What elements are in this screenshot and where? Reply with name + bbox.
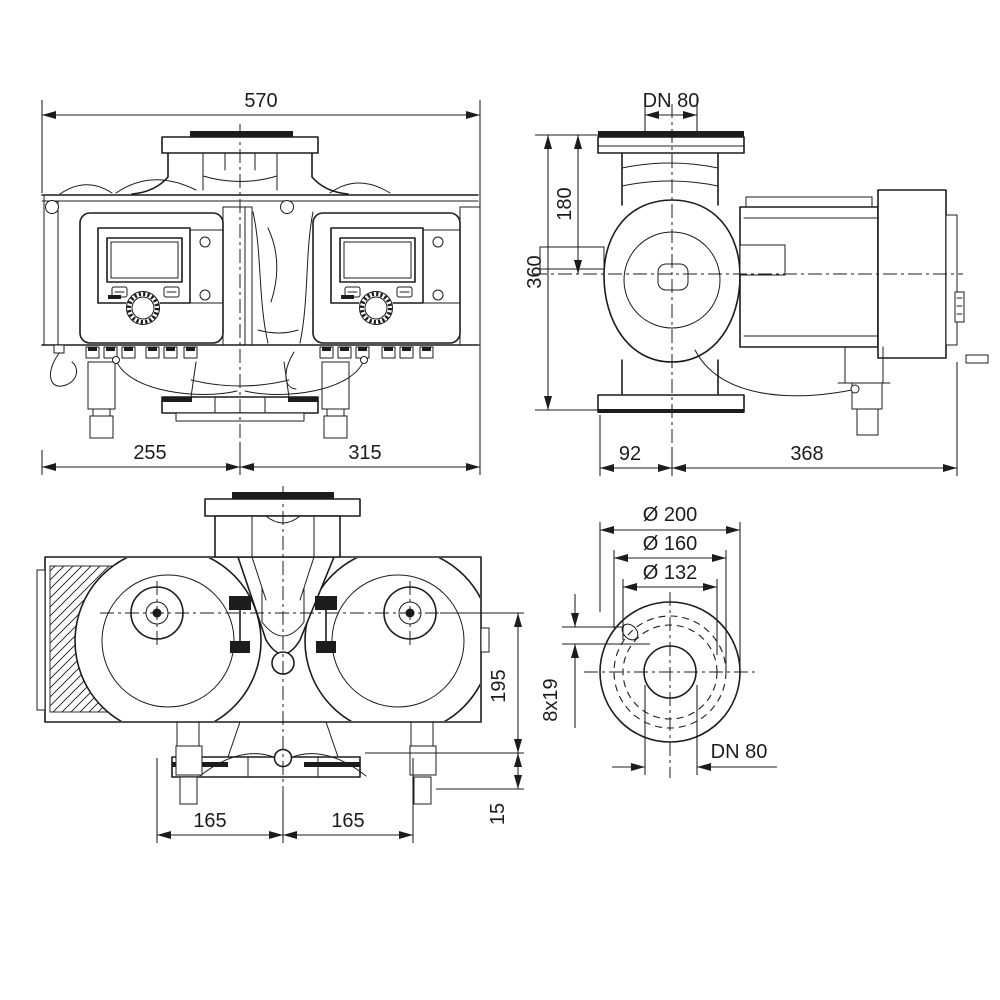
side-module bbox=[878, 190, 988, 363]
front-bolt-hole-center bbox=[281, 201, 294, 214]
control-module-left bbox=[80, 207, 252, 345]
knob-right bbox=[359, 291, 394, 326]
cable-glands bbox=[42, 345, 478, 358]
side-foot bbox=[695, 347, 890, 435]
dimension-depths: 92 368 bbox=[600, 362, 957, 476]
front-bolt-hole-left bbox=[46, 201, 59, 214]
bolt-hole-slot bbox=[619, 621, 641, 643]
bottom-view: 165 165 195 15 bbox=[37, 486, 524, 843]
dim-label-165-right: 165 bbox=[331, 810, 364, 832]
dim-label-92: 92 bbox=[619, 443, 641, 465]
dimension-foot-spans: 255 315 bbox=[42, 442, 480, 475]
front-volute bbox=[253, 212, 313, 343]
dim-label-570: 570 bbox=[244, 90, 277, 112]
side-motor bbox=[740, 197, 878, 347]
side-port-stub bbox=[540, 247, 604, 269]
side-view: DN 80 360 180 92 368 bbox=[524, 90, 988, 476]
drawing-canvas: 570 255 315 bbox=[0, 0, 1000, 1000]
dimension-bolt-holes: 8x19 bbox=[540, 594, 650, 728]
dim-label-dn80-bore: DN 80 bbox=[711, 741, 768, 763]
side-top-flange bbox=[598, 131, 744, 153]
dim-label-8x19: 8x19 bbox=[540, 678, 562, 721]
control-module-right bbox=[313, 207, 480, 345]
dim-label-315: 315 bbox=[348, 442, 381, 464]
dim-label-180: 180 bbox=[554, 187, 576, 220]
dimension-heights: 360 180 bbox=[524, 135, 598, 410]
dim-label-368: 368 bbox=[790, 443, 823, 465]
knob-left bbox=[126, 291, 161, 326]
dim-label-255: 255 bbox=[133, 442, 166, 464]
dim-label-15: 15 bbox=[487, 803, 509, 825]
dim-label-165-left: 165 bbox=[193, 810, 226, 832]
bottom-left-plate bbox=[37, 570, 45, 710]
dim-label-d160: Ø 160 bbox=[643, 533, 697, 555]
front-casing-contour bbox=[60, 180, 390, 194]
side-neck bbox=[622, 153, 718, 205]
dimension-flange-dn: DN 80 bbox=[643, 90, 700, 131]
dimensional-drawing-page: 570 255 315 bbox=[0, 0, 1000, 1000]
side-bottom-flange bbox=[598, 360, 744, 413]
dim-label-d132: Ø 132 bbox=[643, 562, 697, 584]
dim-label-d200: Ø 200 bbox=[643, 504, 697, 526]
dimension-nominal-bore: DN 80 bbox=[612, 685, 777, 775]
dim-label-195: 195 bbox=[488, 669, 510, 702]
front-view: 570 255 315 bbox=[42, 90, 480, 475]
dim-label-dn80-top: DN 80 bbox=[643, 90, 700, 112]
dim-label-360: 360 bbox=[524, 255, 546, 288]
flange-view: Ø 200 Ø 160 Ø 132 8x19 DN 80 bbox=[540, 504, 777, 778]
